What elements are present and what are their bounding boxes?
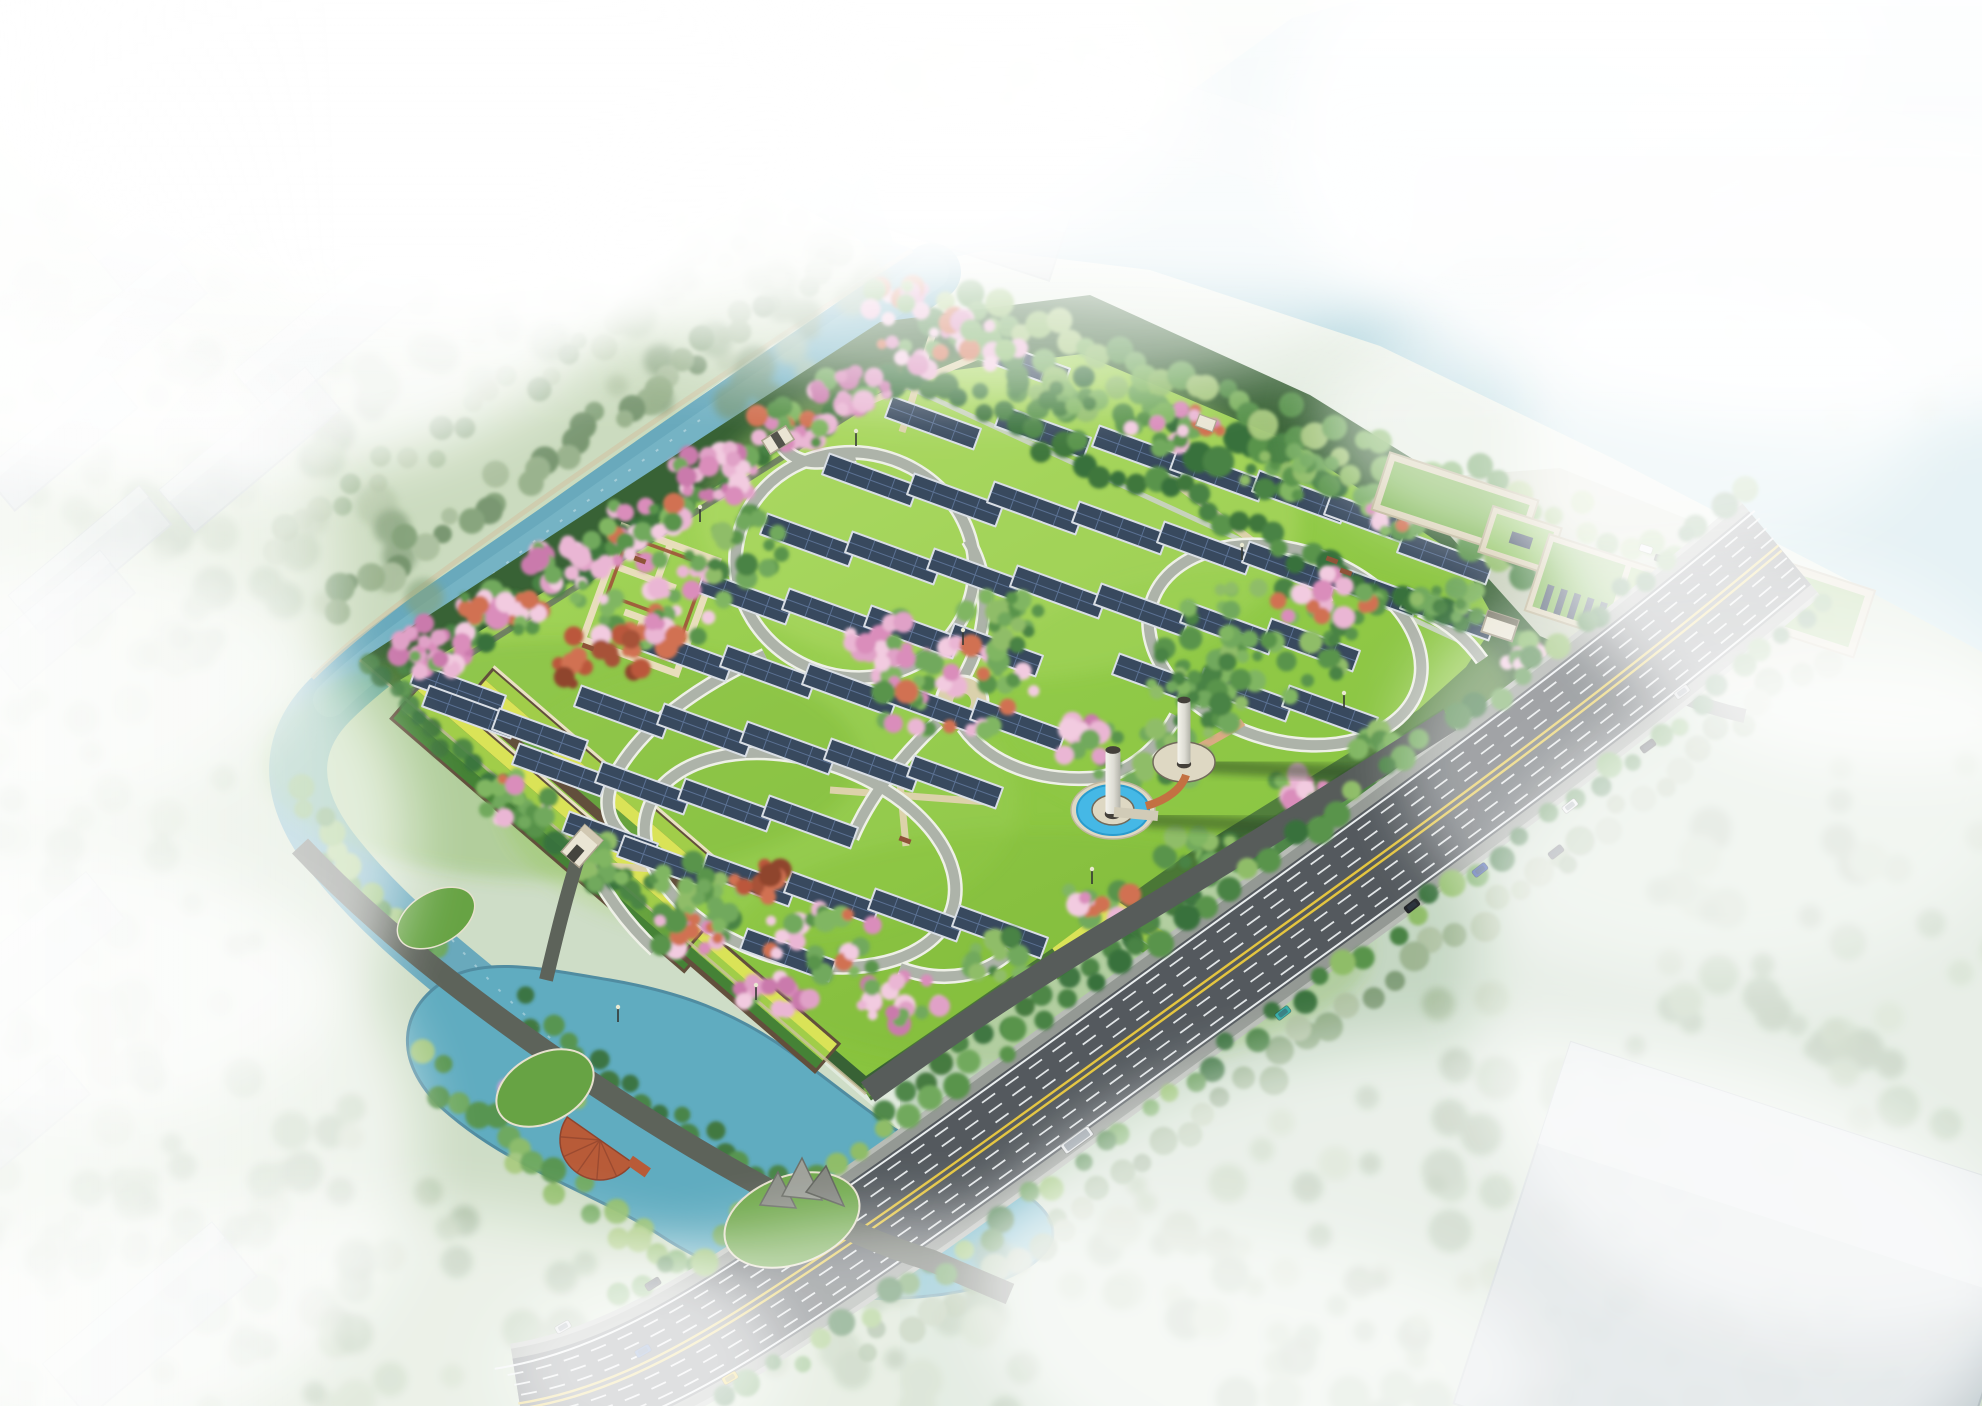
scene-svg xyxy=(0,0,1982,1406)
aerial-rendering-canvas xyxy=(0,0,1982,1406)
global-veil xyxy=(0,0,1982,1406)
